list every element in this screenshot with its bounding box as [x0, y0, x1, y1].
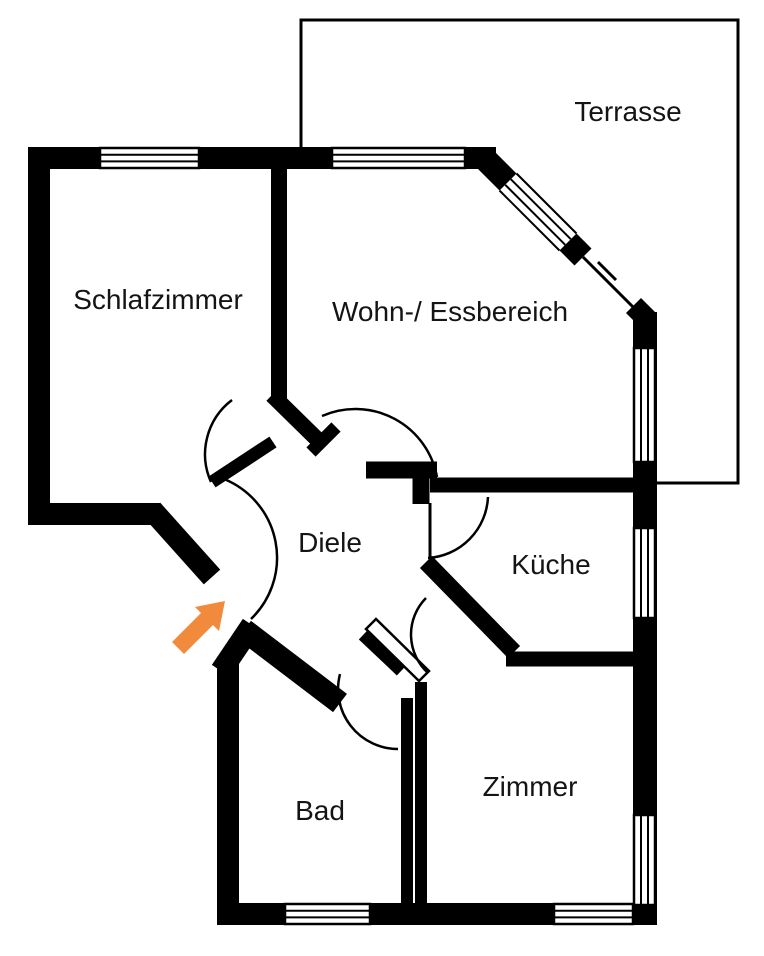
room-label-diele: Diele [298, 527, 362, 558]
terrace-outline [301, 20, 738, 483]
terrace-door-tick [598, 262, 616, 280]
room-label-zimmer: Zimmer [483, 771, 578, 802]
door-arc-entrance [224, 479, 277, 619]
window-right-kueche [634, 528, 655, 618]
window-right-wohnbereich [634, 348, 655, 462]
room-labels: Terrasse Schlafzimmer Wohn-/ Essbereich … [73, 96, 681, 826]
window-right-zimmer [634, 815, 655, 905]
window-bottom-bad [285, 904, 370, 924]
floorplan-page: Terrasse Schlafzimmer Wohn-/ Essbereich … [0, 0, 764, 956]
room-label-bad: Bad [295, 795, 345, 826]
door-leaf-schlafzimmer [212, 442, 273, 482]
window-bottom-zimmer [554, 904, 633, 924]
window-diagonal-terrace [500, 174, 577, 251]
room-label-wohn-essbereich: Wohn-/ Essbereich [332, 296, 568, 327]
wall-entrance-diagonal [152, 510, 212, 577]
window-wohnbereich-top [332, 148, 465, 168]
window-schlafzimmer-top [100, 148, 199, 168]
floorplan-svg: Terrasse Schlafzimmer Wohn-/ Essbereich … [0, 0, 764, 956]
room-label-kueche: Küche [511, 549, 590, 580]
terrace-door-line [583, 257, 637, 311]
room-label-terrasse: Terrasse [574, 96, 681, 127]
room-label-schlafzimmer: Schlafzimmer [73, 284, 243, 315]
wall-kueche-zimmer-diagonal [426, 562, 514, 652]
wall-bad-diagonal [244, 630, 340, 703]
door-arc-kueche [428, 497, 488, 558]
door-arc-bad [338, 674, 398, 749]
entrance-arrow [172, 601, 225, 654]
